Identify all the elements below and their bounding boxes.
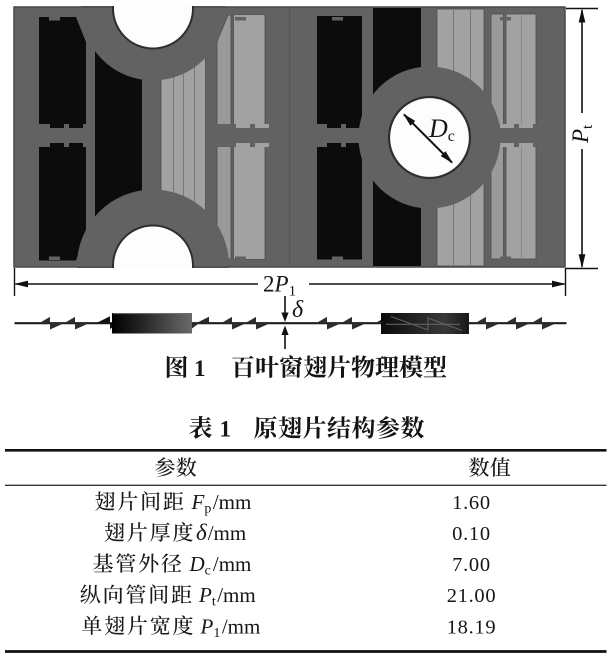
svg-text:Fp/mm: Fp/mm (191, 490, 252, 517)
svg-text:δ/mm: δ/mm (196, 520, 246, 545)
svg-text:18.19: 18.19 (447, 616, 497, 638)
svg-text:1.60: 1.60 (452, 492, 491, 514)
svg-text:δ: δ (292, 297, 304, 323)
svg-text:2P1: 2P1 (263, 272, 296, 300)
svg-text:1: 1 (220, 417, 232, 442)
svg-text:7.00: 7.00 (452, 554, 491, 576)
svg-text:1: 1 (194, 356, 206, 381)
svg-text:P1/mm: P1/mm (200, 614, 261, 641)
svg-text:0.10: 0.10 (452, 523, 491, 545)
svg-text:21.00: 21.00 (447, 585, 497, 607)
svg-text:Dc/mm: Dc/mm (189, 552, 252, 579)
svg-text:Pt/mm: Pt/mm (198, 583, 256, 610)
svg-text:Pt: Pt (568, 124, 596, 144)
